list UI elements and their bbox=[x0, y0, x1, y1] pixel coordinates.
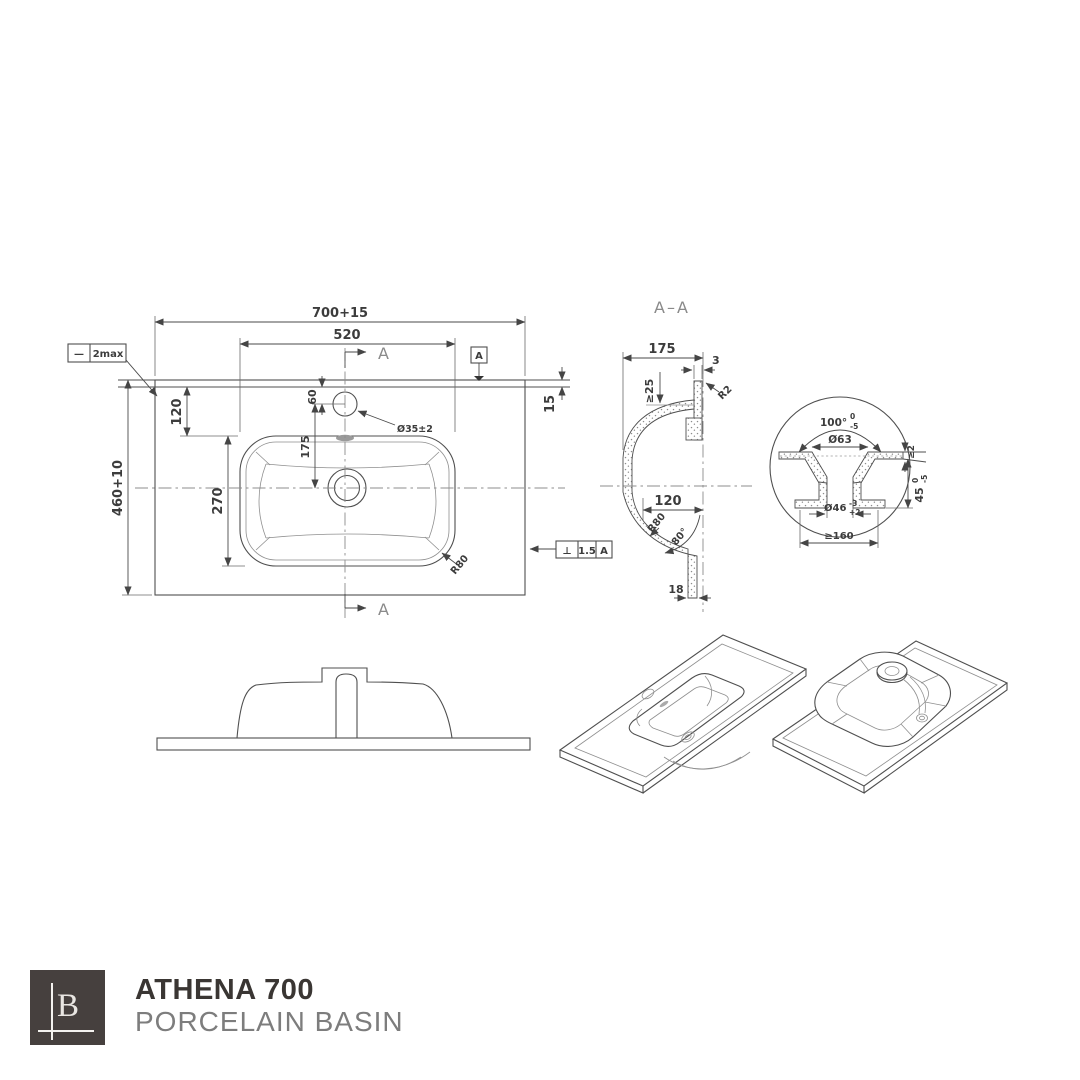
tap-boss-profile bbox=[336, 674, 357, 738]
section-arrow-bottom: A bbox=[378, 600, 389, 619]
dim-inner-width: 520 bbox=[333, 328, 360, 343]
dim-depth: 175 bbox=[648, 342, 675, 357]
isometric-underside-view bbox=[773, 641, 1007, 793]
plan-corner-radius: R80 bbox=[449, 553, 471, 577]
depth-tol-upper: 0 bbox=[911, 478, 920, 483]
elevation-view bbox=[157, 668, 530, 750]
dim-rim-thickness: 3 bbox=[712, 354, 720, 367]
detail-view: 100° 0 -5 Ø63 Ø46 -3 +2 ≥2 45 0 -5 bbox=[770, 397, 929, 548]
dim-hole-to-centre: 175 bbox=[299, 436, 312, 459]
perpendicularity-symbol: ⊥ bbox=[562, 546, 571, 557]
angle-recess: 100° bbox=[820, 417, 847, 429]
plan-outline bbox=[118, 348, 570, 618]
plan-view: 700+15 520 460+10 120 270 60 17 bbox=[68, 306, 612, 619]
dia-outlet: Ø46 bbox=[824, 502, 846, 514]
flatness-callout: — 2max bbox=[68, 344, 157, 396]
tap-boss-cylinder bbox=[877, 662, 907, 680]
dim-back-edge: 15 bbox=[543, 395, 558, 413]
section-cut-marks: A A bbox=[345, 344, 389, 619]
perpendicularity-callout: ⊥ 1.5 A bbox=[530, 541, 612, 558]
counter-slab-side bbox=[157, 738, 530, 750]
counter-top-face bbox=[560, 635, 806, 786]
basin-technical-drawing: 700+15 520 460+10 120 270 60 17 bbox=[0, 0, 1080, 1080]
technical-drawing-page: 700+15 520 460+10 120 270 60 17 bbox=[0, 0, 1080, 1080]
section-title: A–A bbox=[654, 298, 690, 317]
dim-bowl-width: 270 bbox=[211, 487, 226, 514]
bowl-underside-profile bbox=[237, 668, 452, 738]
angle-tol-upper: 0 bbox=[850, 412, 855, 421]
datum-flag: A bbox=[471, 347, 487, 381]
plan-dimensions: 700+15 520 460+10 120 270 60 17 bbox=[68, 306, 612, 619]
section-arrow-top: A bbox=[378, 344, 389, 363]
dia-outlet-tol-lower: +2 bbox=[849, 508, 861, 517]
perpendicularity-datum: A bbox=[600, 546, 608, 557]
dim-outlet-width: 18 bbox=[668, 583, 683, 596]
radius-rim: R2 bbox=[716, 384, 734, 402]
dim-overall-width: 700+15 bbox=[312, 306, 368, 321]
tap-hole-dia: Ø35±2 bbox=[397, 424, 433, 435]
dim-hole-offset: 60 bbox=[306, 389, 319, 405]
perpendicularity-value: 1.5 bbox=[578, 546, 596, 557]
section-dimensions: 175 3 ≥25 R2 120 R80 80° bbox=[623, 342, 735, 598]
dim-recess-depth-group: 45 0 -5 bbox=[911, 475, 929, 503]
section-view: A–A 175 3 ≥25 R2 bbox=[600, 298, 752, 612]
datum-label: A bbox=[475, 351, 483, 362]
dim-min-edge: ≥2 bbox=[907, 445, 917, 459]
dim-bowl-bottom: 120 bbox=[654, 494, 681, 509]
radius-bowl: R80 bbox=[646, 511, 668, 535]
dim-min-overhang: ≥25 bbox=[643, 379, 656, 404]
depth-tol-lower: -5 bbox=[920, 475, 929, 483]
flatness-value: 2max bbox=[93, 349, 124, 360]
dia-recess-top: Ø63 bbox=[828, 434, 852, 446]
flatness-symbol: — bbox=[74, 349, 84, 360]
dim-back-offset: 120 bbox=[170, 398, 185, 425]
dim-recess-depth: 45 bbox=[913, 487, 926, 502]
angle-tol-lower: -5 bbox=[850, 422, 858, 431]
dim-min-flat: ≥160 bbox=[824, 531, 853, 542]
angle-outlet-wall: 80° bbox=[670, 526, 691, 548]
dim-overall-depth: 460+10 bbox=[111, 460, 126, 516]
isometric-top-view bbox=[560, 635, 806, 793]
dia-outlet-tol-upper: -3 bbox=[849, 499, 857, 508]
